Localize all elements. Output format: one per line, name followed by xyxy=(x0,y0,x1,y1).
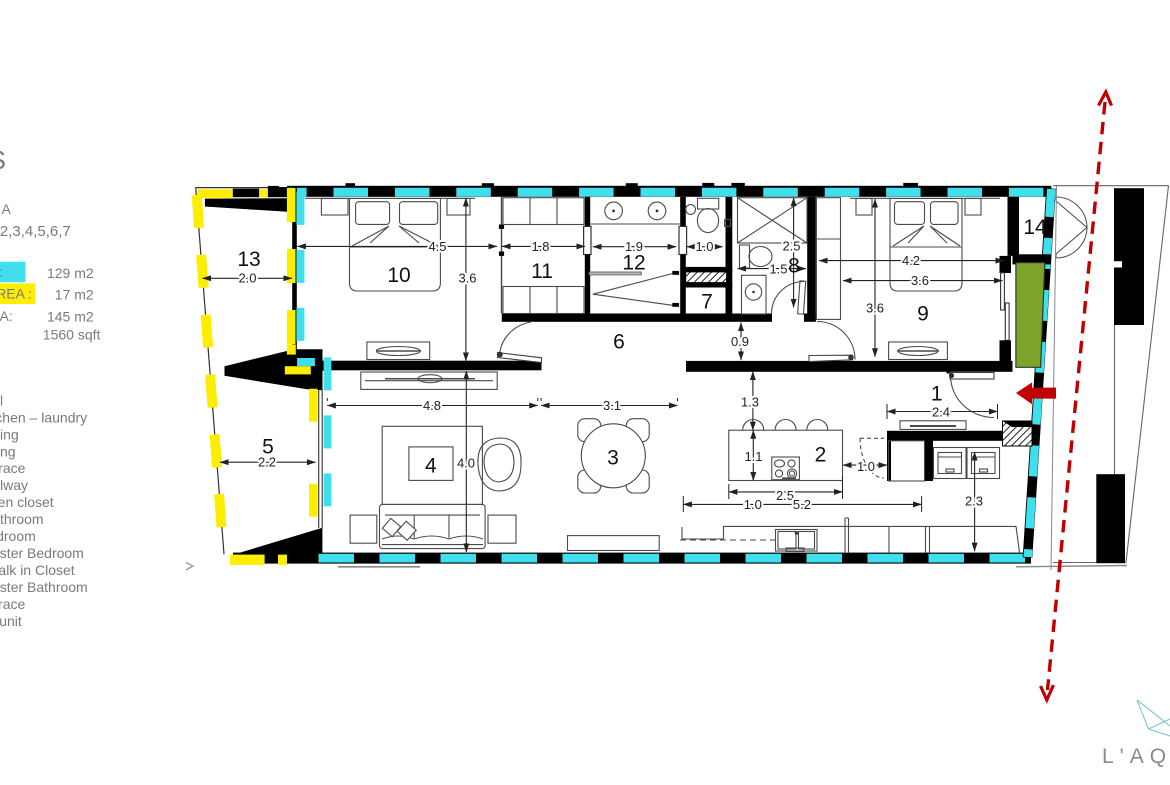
svg-text:3.6: 3.6 xyxy=(911,273,929,288)
svg-text:1.0: 1.0 xyxy=(695,239,713,254)
svg-text:14. AC unit: 14. AC unit xyxy=(0,613,22,629)
svg-text:1.0: 1.0 xyxy=(744,497,762,512)
svg-text:1. Hall: 1. Hall xyxy=(0,392,3,408)
svg-text:3.6: 3.6 xyxy=(866,301,884,316)
svg-text:9: 9 xyxy=(917,303,929,326)
svg-text:2.3: 2.3 xyxy=(965,494,983,509)
svg-text:2: 2 xyxy=(815,444,827,467)
svg-text:INTERIOR :: INTERIOR : xyxy=(0,264,3,280)
svg-text:2.5: 2.5 xyxy=(782,239,800,254)
svg-text:1560 sqft: 1560 sqft xyxy=(43,327,101,343)
svg-text:1.0: 1.0 xyxy=(857,459,875,474)
svg-text:0.9: 0.9 xyxy=(731,334,749,349)
svg-text:13. Terrace: 13. Terrace xyxy=(0,596,25,612)
svg-text:4.2: 4.2 xyxy=(902,253,920,268)
svg-text:2. Kitchen – laundry: 2. Kitchen – laundry xyxy=(0,409,87,425)
svg-text:6: 6 xyxy=(613,331,625,354)
svg-text:14: 14 xyxy=(1023,216,1047,239)
svg-text:17 m2: 17 m2 xyxy=(55,287,94,303)
svg-text:129 m2: 129 m2 xyxy=(47,265,94,281)
svg-text:4.5: 4.5 xyxy=(428,239,446,254)
svg-text:UNIT A: UNIT A xyxy=(0,201,12,217)
svg-text:LEVELS 2,3,4,5,6,7: LEVELS 2,3,4,5,6,7 xyxy=(0,223,71,240)
svg-text:2.4: 2.4 xyxy=(932,405,950,420)
svg-text:7. Linen closet: 7. Linen closet xyxy=(0,494,54,510)
svg-text:9. Bedroom: 9. Bedroom xyxy=(0,528,36,544)
svg-text:12. Master Bathroom: 12. Master Bathroom xyxy=(0,579,88,595)
svg-text:3. Living: 3. Living xyxy=(0,426,19,442)
svg-text:1: 1 xyxy=(931,383,943,406)
svg-text:7: 7 xyxy=(701,291,713,314)
svg-text:11. Walk in Closet: 11. Walk in Closet xyxy=(0,562,75,578)
svg-text:1.3: 1.3 xyxy=(741,395,759,410)
svg-text:2.5: 2.5 xyxy=(776,488,794,503)
svg-text:145 m2: 145 m2 xyxy=(47,308,94,324)
svg-text:4.0: 4.0 xyxy=(457,456,475,471)
svg-text:APARTMENTS: APARTMENTS xyxy=(0,145,6,175)
svg-text:TERRACE AREA :: TERRACE AREA : xyxy=(0,286,32,302)
svg-text:1.8: 1.8 xyxy=(531,239,549,254)
svg-text:2.0: 2.0 xyxy=(238,271,256,286)
svg-text:1.1: 1.1 xyxy=(744,449,762,464)
svg-text:3: 3 xyxy=(607,447,619,470)
svg-text:4.8: 4.8 xyxy=(423,398,441,413)
svg-text:4. Dining: 4. Dining xyxy=(0,443,16,459)
svg-text:4: 4 xyxy=(425,455,437,478)
svg-text:5. Terrace: 5. Terrace xyxy=(0,460,26,476)
svg-text:3.1: 3.1 xyxy=(603,398,621,413)
svg-text:TOTAL AREA:: TOTAL AREA: xyxy=(0,308,13,324)
svg-text:5: 5 xyxy=(262,436,274,459)
svg-text:12: 12 xyxy=(622,252,645,275)
svg-text:8: 8 xyxy=(788,255,800,278)
svg-text:13: 13 xyxy=(237,248,260,271)
svg-text:10. Master Bedroom: 10. Master Bedroom xyxy=(0,545,84,561)
svg-text:6. Hallway: 6. Hallway xyxy=(0,477,28,493)
svg-text:11: 11 xyxy=(531,260,553,283)
svg-text:10: 10 xyxy=(387,264,410,287)
svg-text:L'AQUA: L'AQUA xyxy=(1102,745,1170,768)
svg-text:3.6: 3.6 xyxy=(458,271,476,286)
svg-text:5.2: 5.2 xyxy=(793,497,811,512)
svg-text:1.5: 1.5 xyxy=(769,262,787,277)
svg-text:8. Bathroom: 8. Bathroom xyxy=(0,511,44,527)
